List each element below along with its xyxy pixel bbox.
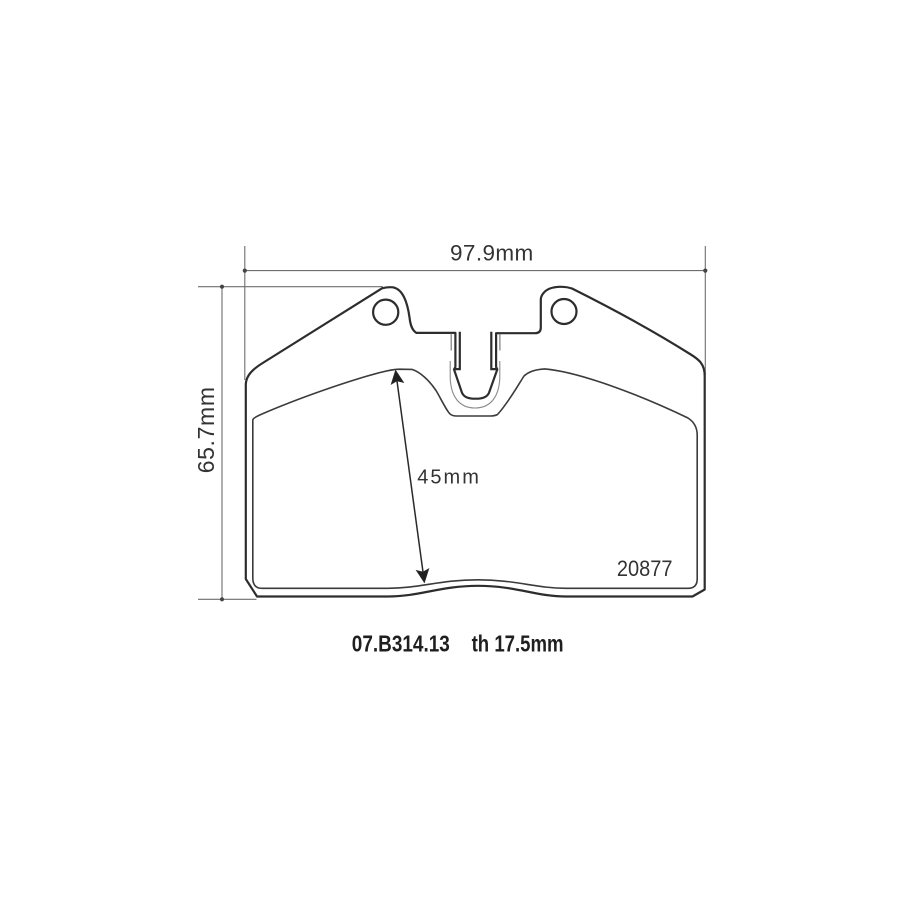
svg-text:65.7mm: 65.7mm — [193, 387, 219, 473]
svg-text:th 17.5mm: th 17.5mm — [472, 631, 564, 657]
svg-text:45mm: 45mm — [417, 466, 479, 488]
svg-text:20877: 20877 — [617, 556, 673, 581]
svg-text:07.B314.13: 07.B314.13 — [352, 631, 450, 657]
svg-text:97.9mm: 97.9mm — [450, 240, 533, 265]
